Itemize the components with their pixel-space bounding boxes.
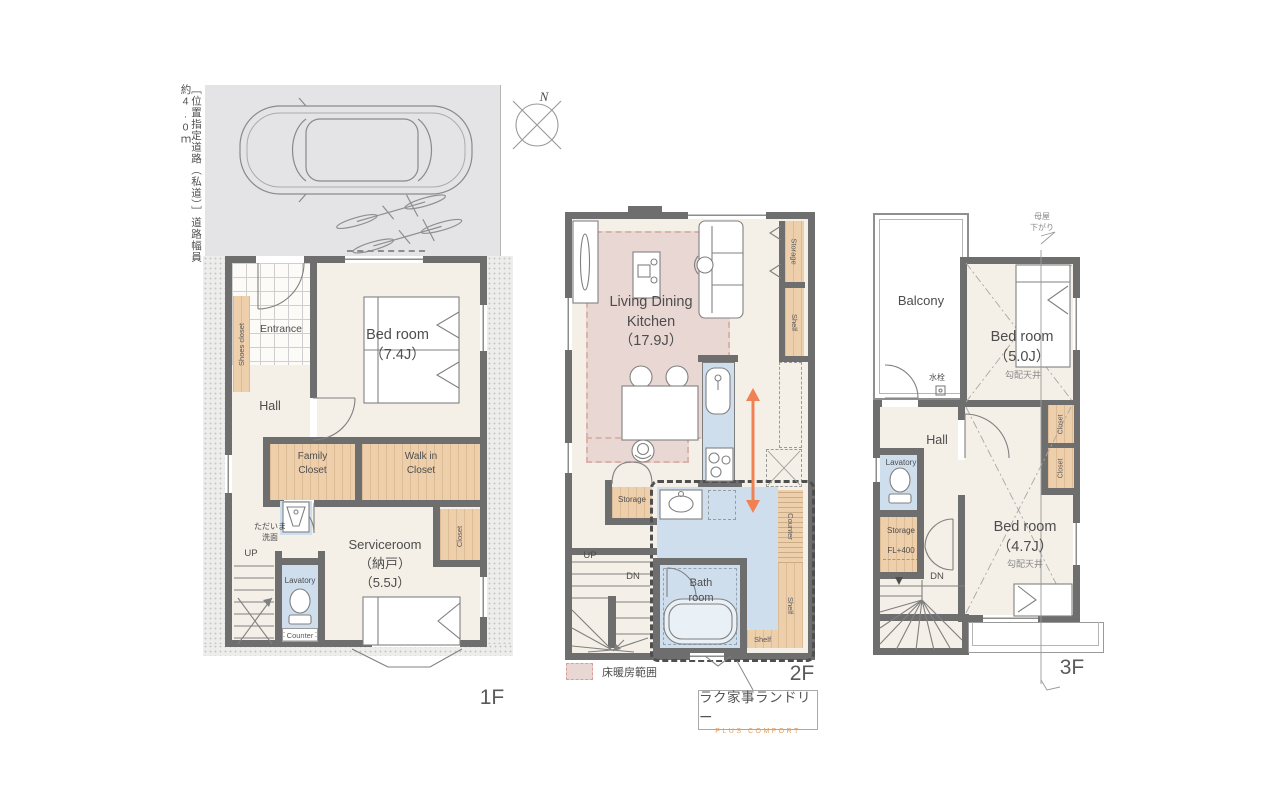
kitchen-counter [702,362,735,486]
site-boundary-line [500,85,501,256]
wall [263,437,270,507]
shelf-side-label: Shelf [786,597,795,614]
window [345,256,423,263]
road-note: ［位置指定道路（私道）］道路幅員約4.0ｍ [181,84,201,274]
laundry-callout: ラク家事ランドリー PLUS COMFORT [698,690,818,730]
floor-2-label: 2F [782,660,822,688]
shelf-top-label-wrap: Shelf [785,288,804,356]
counter-2f-label: Counter [786,513,795,540]
shelf-top-label: Shelf [790,313,799,330]
sloped-ceiling-s-label: 勾配天井 [990,558,1060,570]
ground-texture [203,256,225,652]
lavatory-3f-label: Lavatory [878,458,924,469]
shelf-label: Shelf [754,635,771,644]
shoes-closet-label-wrap: Shoes closet [233,296,250,392]
closet-b-label-wrap: Closet [1048,448,1074,488]
wall [873,448,923,455]
bedroom-1f-label: Bed room （7.4J） [330,326,465,365]
wall [698,355,738,362]
floor-3-label: 3F [1050,654,1094,682]
up-2f-label: UP [576,550,604,563]
wall [275,551,282,647]
shelf-side-label-wrap: Shelf [778,563,803,648]
storage-left-label: Storage [612,495,652,506]
closet-b-label: Closet [1058,458,1065,478]
window [690,653,724,660]
callout-subtitle: PLUS COMFORT [715,728,801,735]
up-1f-label: UP [234,548,268,561]
floor-plan-sheet: ［位置指定道路（私道）］道路幅員約4.0ｍ N Counter [0,0,1273,804]
callout-title: ラク家事ランドリー [699,686,817,726]
hall-1f-label: Hall [240,398,300,415]
bedroom-n-label: Bed room （5.0J） [972,328,1072,367]
eave-dashed-line [347,250,425,252]
closet-a-label: Closet [1058,414,1065,434]
shelf-bottom: Shelf [747,630,778,648]
wall [263,437,487,444]
refrigerator-space [779,362,802,448]
window [225,455,232,493]
floor-heating-legend-label: 床暖房範囲 [602,666,692,681]
bedroom-s-label: Bed room （4.7J） [975,518,1075,557]
ground-texture [487,256,513,652]
floor-heating-area [586,437,689,463]
walk-in-closet-label: Walk in Closet [364,450,478,477]
tadaima-label: ただいま 洗面 [246,522,294,544]
compass [513,101,561,149]
window [565,298,572,350]
window [983,615,1038,622]
floor-1-label: 1F [470,684,514,712]
entrance-label: Entrance [246,322,316,336]
closet-1f-label: Closet [455,525,464,546]
wall [355,437,362,507]
family-closet-label: Family Closet [272,450,353,477]
hall-3f-label: Hall [912,432,962,449]
bathroom-label: Bath room [672,576,730,606]
roof-eave-inner [972,622,1099,646]
stair-post [608,596,616,648]
window [1073,298,1080,350]
ridge-drop-label: 母屋 下がり [1026,212,1058,234]
sloped-ceiling-n-label: 勾配天井 [988,369,1058,381]
ldk-label: Living Dining Kitchen （17.9J） [595,293,707,352]
window [372,640,460,647]
wall [873,510,923,517]
wall [873,572,923,579]
window [480,577,487,617]
door-opening [882,400,918,407]
door-opening [310,398,317,440]
lavatory-1f-label: Lavatory [278,576,322,587]
faucet-label: 水栓 [920,373,954,384]
dn-2f-label: DN [618,571,648,584]
closet-a-label-wrap: Closet [1048,405,1074,443]
serviceroom-label: Serviceroom （納戸） （5.5J） [320,536,450,593]
lavatory-counter: Counter [282,628,318,642]
compass-north-label: N [534,88,554,106]
door-opening [256,256,304,263]
shoes-closet-label: Shoes closet [237,323,246,366]
wall [958,400,965,420]
counter-2f-label-wrap: Counter [778,490,803,563]
window [688,212,766,219]
storage-top-label-wrap: Storage [785,221,804,282]
wall [958,495,965,622]
window [480,305,487,351]
3f-outline-stairs [873,614,969,655]
storage-level-label: FL+400 [880,546,922,557]
storage-3f-label: Storage [880,526,922,537]
balcony-label: Balcony [878,292,964,310]
counter-label: Counter [285,631,316,640]
floor-heating-legend-swatch [566,663,593,680]
closet-1f-label-wrap: Closet [440,509,480,563]
storage-level-line [883,559,919,560]
window [565,443,572,473]
storage-top-label: Storage [790,238,799,264]
driveway [205,85,501,256]
wall [1041,488,1074,495]
dn-3f-label: DN [922,571,952,584]
